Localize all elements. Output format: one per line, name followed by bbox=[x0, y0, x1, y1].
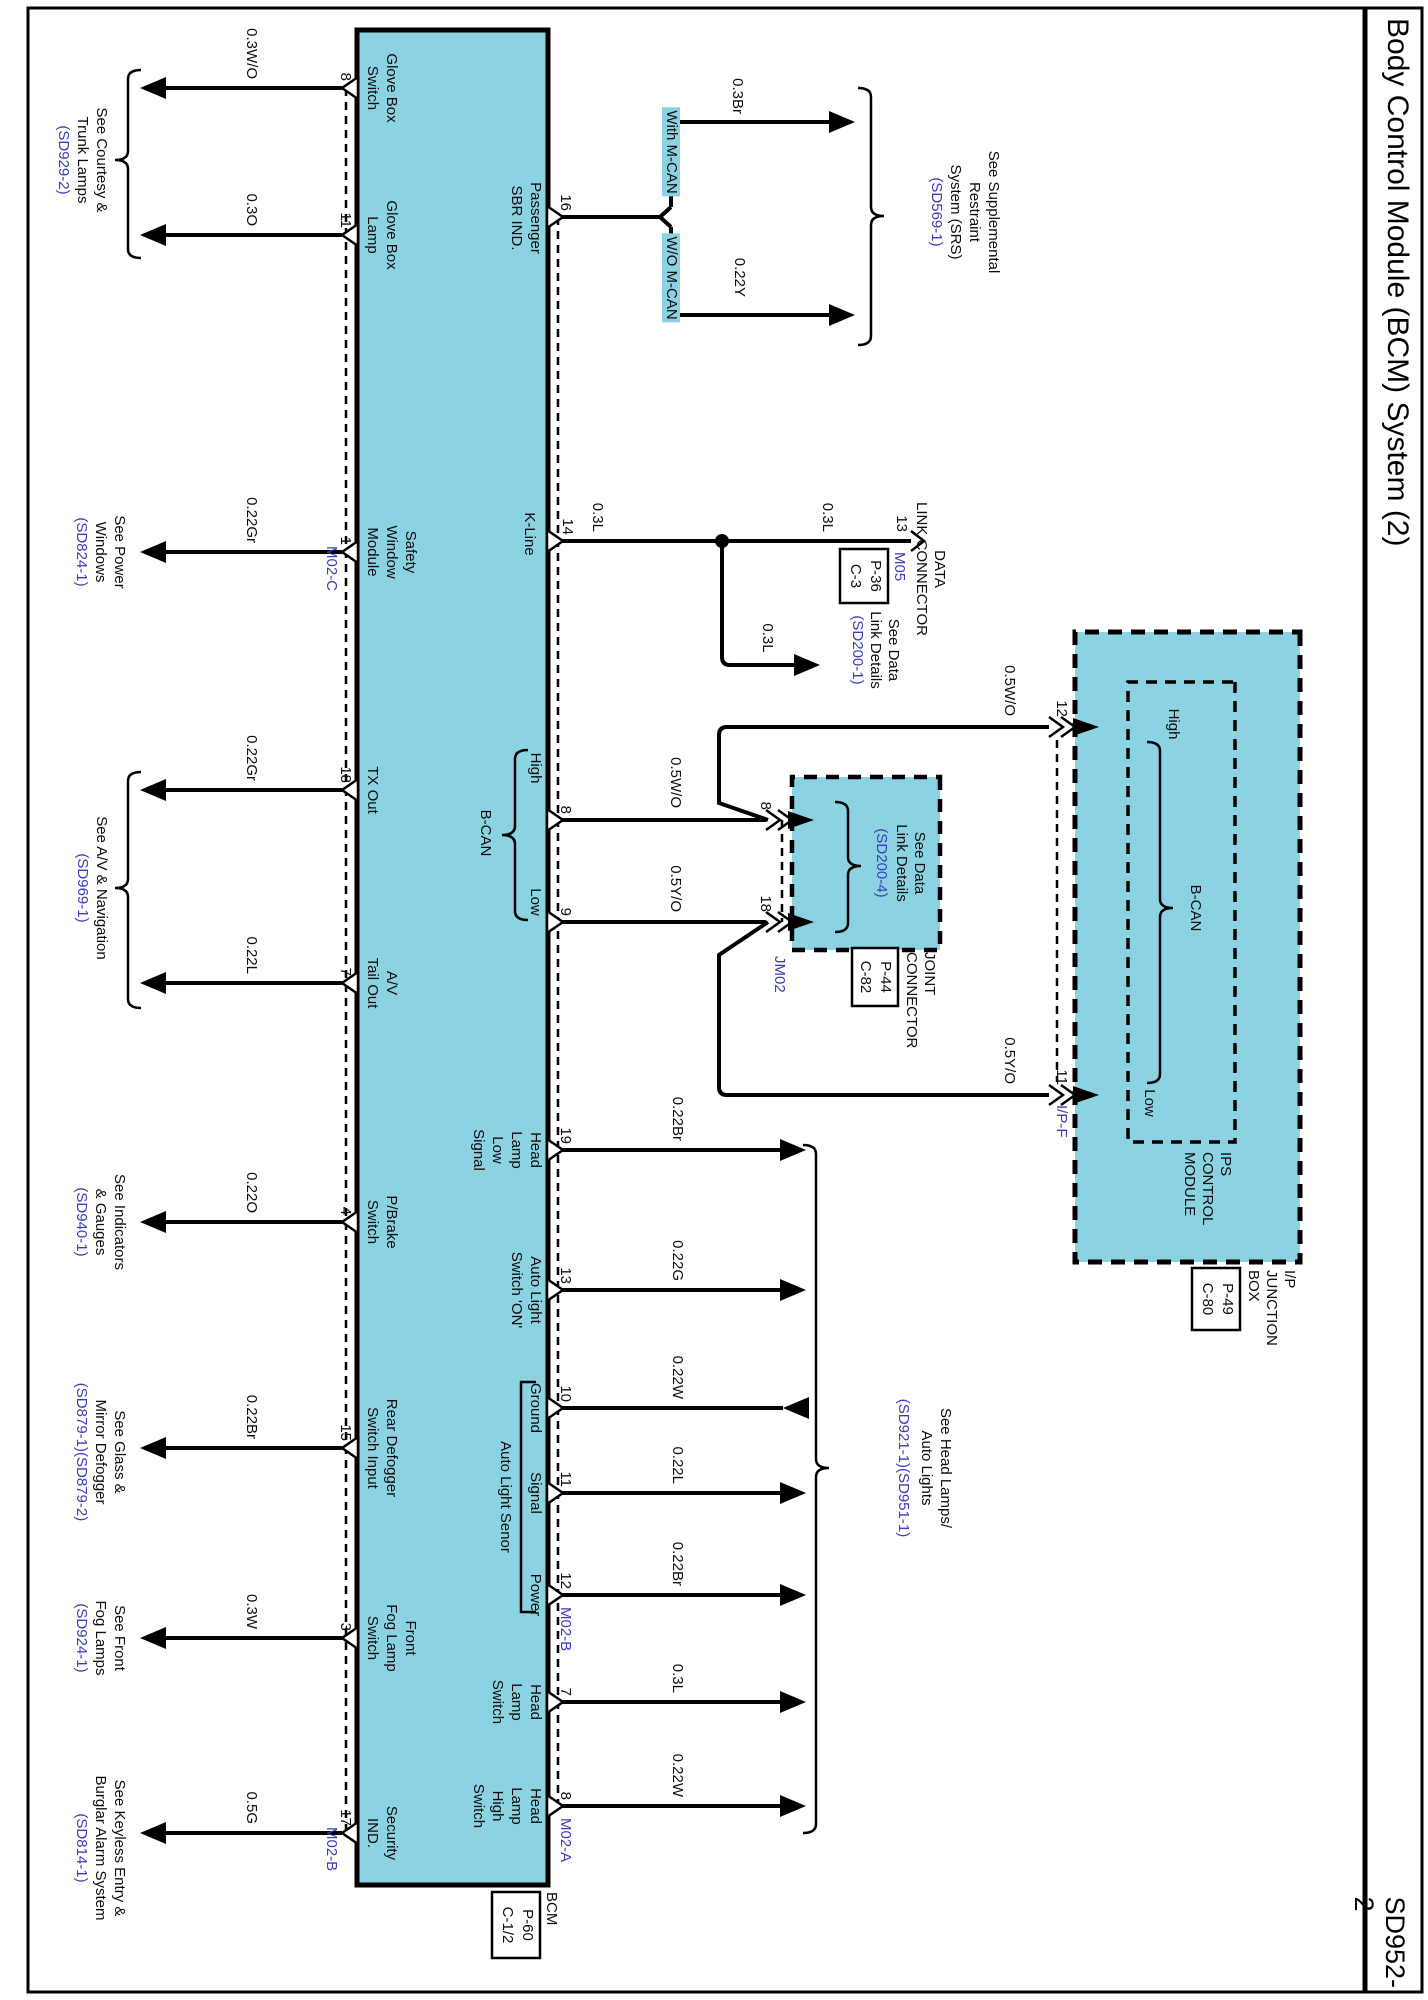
flow-arrow-icon bbox=[140, 1437, 166, 1459]
group-brace-icon bbox=[115, 70, 141, 258]
wire-gauge-color: 0.5Y/O bbox=[1000, 1037, 1018, 1084]
wire-gauge-color: 0.3W/O bbox=[242, 28, 260, 79]
see-reference-text: Trunk Lamps bbox=[73, 117, 91, 204]
see-reference-code: (SD929-2) bbox=[54, 125, 72, 194]
bcm-pin-label: Switch bbox=[469, 1784, 487, 1828]
component-name: DATA bbox=[930, 550, 948, 588]
component-name: I/P bbox=[1280, 1270, 1298, 1288]
wire-gauge-color: 0.3W bbox=[242, 1594, 260, 1629]
component-name: CONTROL bbox=[1198, 1152, 1216, 1225]
see-reference-text: Link Details bbox=[866, 611, 884, 689]
see-reference-text: See Data bbox=[910, 832, 928, 895]
bcm-pin-label: Signal bbox=[469, 1129, 487, 1171]
see-reference-text: Windows bbox=[91, 522, 109, 583]
pin-number: 13 bbox=[892, 515, 910, 532]
see-reference-text: System (SRS) bbox=[946, 164, 964, 259]
pin-number: 10 bbox=[556, 1385, 574, 1402]
flow-arrow-icon bbox=[780, 1139, 806, 1161]
bcm-pin-label: Switch bbox=[363, 1616, 381, 1660]
wire-gauge-color: 0.22Y bbox=[730, 258, 748, 297]
wire-gauge-color: 0.3L bbox=[758, 623, 776, 652]
bcm-pin-label: A/V bbox=[382, 971, 400, 995]
see-reference-text: Restraint bbox=[965, 182, 983, 242]
bcm-pin-label: Tail Out bbox=[363, 958, 381, 1009]
wire-gauge-color: 0.3L bbox=[818, 503, 836, 532]
bcm-pin-label: P/Brake bbox=[382, 1195, 400, 1248]
flow-arrow-icon bbox=[794, 654, 820, 676]
page-title: Body Control Module (BCM) System (2) bbox=[1380, 18, 1414, 547]
flow-arrow-icon bbox=[780, 1795, 806, 1817]
see-reference-text: See Front bbox=[110, 1605, 128, 1671]
bcm-pin-label: Lamp bbox=[507, 1683, 525, 1721]
see-reference-text: See Indicators bbox=[110, 1174, 128, 1270]
flow-arrow-icon bbox=[829, 304, 855, 326]
component-name: IPS bbox=[1216, 1152, 1234, 1176]
pin-number: 14 bbox=[558, 518, 576, 535]
flow-arrow-icon bbox=[140, 972, 166, 994]
pin-number: 7 bbox=[336, 968, 354, 976]
bcm-pin-label: Switch bbox=[488, 1680, 506, 1724]
pin-number: 8 bbox=[556, 1792, 574, 1800]
connector-ref: M02-B bbox=[322, 1827, 340, 1871]
bcm-pin-label: TX Out bbox=[363, 766, 381, 814]
flow-arrow-icon bbox=[780, 1584, 806, 1606]
wire-gauge-color: 0.22Gr bbox=[242, 497, 260, 543]
bcm-pin-label: Lamp bbox=[507, 1787, 525, 1825]
connector-id: P-60 bbox=[518, 1909, 536, 1941]
pin-number: 7 bbox=[556, 1688, 574, 1696]
wire-gauge-color: 0.3L bbox=[588, 503, 606, 532]
see-reference-code: (SD969-1) bbox=[73, 853, 91, 922]
pin-number: 12 bbox=[556, 1572, 574, 1589]
bcm-pin-label: Lamp bbox=[507, 1131, 525, 1169]
pin-number: 19 bbox=[556, 1127, 574, 1144]
sensor-group-label: Auto Light Senor bbox=[496, 1441, 514, 1553]
bus-group-label: B-CAN bbox=[1186, 885, 1204, 932]
component-name: JOINT bbox=[920, 952, 938, 995]
see-reference-text: Auto Lights bbox=[917, 1430, 935, 1505]
see-reference-text: See A/V & Navigation bbox=[92, 816, 110, 959]
bcm-pin-label: K-Line bbox=[520, 512, 538, 555]
pin-number: 4 bbox=[336, 1207, 354, 1215]
pin-number: 18 bbox=[756, 895, 774, 912]
wire-gauge-color: 0.22O bbox=[242, 1172, 260, 1213]
flow-arrow-icon bbox=[140, 77, 166, 99]
wire bbox=[671, 122, 829, 207]
see-reference-code: (SD200-1) bbox=[848, 615, 866, 684]
see-reference-text: Mirror Defogger bbox=[91, 1399, 109, 1504]
wire-gauge-color: 0.22L bbox=[668, 1446, 686, 1484]
bcm-pin-label: Front bbox=[401, 1620, 419, 1655]
pin-chevron-icon bbox=[1049, 717, 1063, 737]
wire-gauge-color: 0.22W bbox=[668, 1754, 686, 1797]
wire-gauge-color: 0.3O bbox=[242, 193, 260, 226]
wire-gauge-color: 0.22W bbox=[668, 1356, 686, 1399]
group-brace-icon bbox=[115, 772, 141, 1008]
wire-gauge-color: 0.5W/O bbox=[666, 757, 684, 808]
pin-number: 17 bbox=[336, 1809, 354, 1826]
flow-arrow-icon bbox=[780, 1691, 806, 1713]
diagram-canvas: Body Control Module (BCM) System (2) SD9… bbox=[0, 0, 1428, 2000]
bcm-pin-label: Switch Input bbox=[363, 1407, 381, 1489]
pin-chevron-icon bbox=[766, 912, 780, 932]
bcm-pin-label: Switch bbox=[363, 66, 381, 110]
connector-id: C-3 bbox=[846, 564, 864, 588]
bcm-pin-label: Head bbox=[526, 1788, 544, 1824]
wire-gauge-color: 0.22Br bbox=[242, 1395, 260, 1439]
see-reference-code: (SD569-1) bbox=[927, 177, 945, 246]
pin-number: 3 bbox=[336, 1623, 354, 1631]
group-brace-icon bbox=[858, 88, 884, 345]
wiring-diagram-svg bbox=[0, 0, 1428, 2000]
bus-line-label: Low bbox=[1140, 1089, 1158, 1117]
connector-ref: JM02 bbox=[770, 956, 788, 993]
see-reference-code: (SD924-1) bbox=[72, 1603, 90, 1672]
pin-number: 16 bbox=[556, 194, 574, 211]
bcm-pin-label: Glove Box bbox=[382, 53, 400, 122]
see-reference-code: (SD879-1)(SD879-2) bbox=[72, 1383, 90, 1521]
bcm-pin-label: High bbox=[526, 753, 544, 784]
connector-id: P-36 bbox=[866, 560, 884, 592]
bcm-pin-label: SBR IND. bbox=[507, 185, 525, 250]
wire-gauge-color: 0.5G bbox=[242, 1791, 260, 1824]
wire bbox=[660, 217, 671, 227]
see-reference-text: See Supplemental bbox=[984, 151, 1002, 274]
bus-group-label: B-CAN bbox=[476, 810, 494, 857]
see-reference-code: (SD814-1) bbox=[72, 1813, 90, 1882]
pin-number: 11 bbox=[1052, 1069, 1070, 1085]
see-reference-text: See Power bbox=[110, 515, 128, 588]
connector-id: P-49 bbox=[1218, 1283, 1236, 1315]
connector-ref: I/P-F bbox=[1052, 1105, 1070, 1138]
bcm-pin-label: Lamp bbox=[363, 216, 381, 254]
bcm-pin-label: Rear Defogger bbox=[382, 1399, 400, 1497]
see-reference-text: Burglar Alarm System bbox=[91, 1775, 109, 1920]
pin-number: 12 bbox=[1052, 700, 1070, 717]
connector-ref: M02-C bbox=[322, 546, 340, 591]
bcm-pin-label: Power bbox=[526, 1574, 544, 1617]
see-reference-text: See Head Lamps/ bbox=[936, 1408, 954, 1528]
see-reference-text: & Gauges bbox=[91, 1189, 109, 1256]
bcm-pin-label: Passenger bbox=[526, 182, 544, 254]
connector-id: C-82 bbox=[856, 961, 874, 994]
see-reference-code: (SD940-1) bbox=[72, 1187, 90, 1256]
connector-ref: M02-A bbox=[556, 1818, 574, 1862]
flow-arrow-icon bbox=[783, 1397, 809, 1419]
bcm-pin-label: Security bbox=[382, 1806, 400, 1860]
connector-id: C-80 bbox=[1198, 1283, 1216, 1316]
connector-id: C-1/2 bbox=[498, 1907, 516, 1944]
pin-number: 9 bbox=[556, 908, 574, 916]
variant-tag: W/O M-CAN bbox=[662, 233, 680, 322]
flow-arrow-icon bbox=[780, 1482, 806, 1504]
pin-number: 15 bbox=[336, 1424, 354, 1441]
component-name: CONNECTOR bbox=[902, 952, 920, 1048]
flow-arrow-icon bbox=[140, 779, 166, 801]
bcm-pin-label: Signal bbox=[526, 1472, 544, 1514]
bus-line-label: High bbox=[1164, 709, 1182, 740]
flow-arrow-icon bbox=[780, 1279, 806, 1301]
wire-gauge-color: 0.22Br bbox=[668, 1542, 686, 1586]
bcm-pin-label: Ground bbox=[526, 1383, 544, 1433]
pin-number: 8 bbox=[756, 802, 774, 810]
see-reference-text: See Courtesy & bbox=[92, 107, 110, 212]
bcm-pin-label: Safety bbox=[401, 531, 419, 574]
flow-arrow-icon bbox=[140, 1627, 166, 1649]
bcm-pin-label: High bbox=[488, 1791, 506, 1822]
connector-ref: M05 bbox=[890, 552, 908, 581]
pin-chevron-icon bbox=[1049, 1085, 1063, 1105]
bcm-pin-label: Window bbox=[382, 525, 400, 578]
bcm-pin-label: Switch 'ON' bbox=[507, 1252, 525, 1329]
flow-arrow-icon bbox=[140, 1211, 166, 1233]
component-name: BOX bbox=[1244, 1270, 1262, 1302]
pin-number: 11 bbox=[556, 1471, 574, 1487]
wire bbox=[660, 207, 671, 217]
component-name: MODULE bbox=[1180, 1152, 1198, 1216]
bcm-pin-label: Module bbox=[363, 527, 381, 576]
see-reference-text: See Keyless Entry & bbox=[110, 1780, 128, 1917]
connector-id: P-44 bbox=[876, 961, 894, 993]
see-reference-code: (SD921-1)(SD951-1) bbox=[894, 1399, 912, 1537]
connector-ref: M02-B bbox=[556, 1607, 574, 1651]
wire-gauge-color: 0.22Br bbox=[668, 1097, 686, 1141]
flow-arrow-icon bbox=[140, 541, 166, 563]
wire-gauge-color: 0.5W/O bbox=[1000, 665, 1018, 716]
bcm-name-label: BCM bbox=[542, 1892, 560, 1925]
bcm-pin-label: Head bbox=[526, 1684, 544, 1720]
wire-gauge-color: 0.3Br bbox=[728, 78, 746, 114]
wire bbox=[671, 227, 829, 315]
doc-code: SD952-2 bbox=[1348, 1896, 1410, 1988]
wire-gauge-color: 0.22L bbox=[242, 936, 260, 974]
see-reference-text: See Glass & bbox=[110, 1410, 128, 1493]
bcm-pin-label: Fog Lamp bbox=[382, 1604, 400, 1672]
flow-arrow-icon bbox=[829, 111, 855, 133]
see-reference-text: See Data bbox=[884, 619, 902, 682]
group-brace-icon bbox=[803, 1145, 829, 1833]
bcm-pin-label: Low bbox=[526, 888, 544, 916]
bcm-pin-label: Auto Light bbox=[526, 1256, 544, 1324]
wire-gauge-color: 0.22Gr bbox=[242, 735, 260, 781]
pin-chevron-icon bbox=[766, 810, 780, 830]
component-name: LINK CONNECTOR bbox=[912, 502, 930, 636]
wire-gauge-color: 0.22G bbox=[668, 1240, 686, 1281]
flow-arrow-icon bbox=[140, 224, 166, 246]
bcm-pin-label: Head bbox=[526, 1132, 544, 1168]
bcm-pin-label: Glove Box bbox=[382, 200, 400, 269]
component-name: JUNCTION bbox=[1262, 1270, 1280, 1346]
see-reference-code: (SD200-4) bbox=[872, 828, 890, 897]
wire-gauge-color: 0.3L bbox=[668, 1664, 686, 1693]
pin-number: 18 bbox=[336, 766, 354, 783]
see-reference-code: (SD824-1) bbox=[72, 517, 90, 586]
pin-number: 11 bbox=[336, 212, 354, 228]
bcm-pin-label: IND. bbox=[363, 1818, 381, 1848]
wire-gauge-color: 0.5Y/O bbox=[666, 865, 684, 912]
pin-number: 8 bbox=[556, 806, 574, 814]
bcm-pin-label: Switch bbox=[363, 1200, 381, 1244]
pin-number: 1 bbox=[336, 537, 354, 545]
variant-tag: With M-CAN bbox=[662, 107, 680, 196]
bcm-pin-label: Low bbox=[488, 1136, 506, 1164]
pin-number: 13 bbox=[556, 1267, 574, 1284]
see-reference-text: Fog Lamps bbox=[91, 1600, 109, 1675]
pin-number: 8 bbox=[336, 73, 354, 81]
see-reference-text: Link Details bbox=[892, 824, 910, 902]
flow-arrow-icon bbox=[140, 1822, 166, 1844]
